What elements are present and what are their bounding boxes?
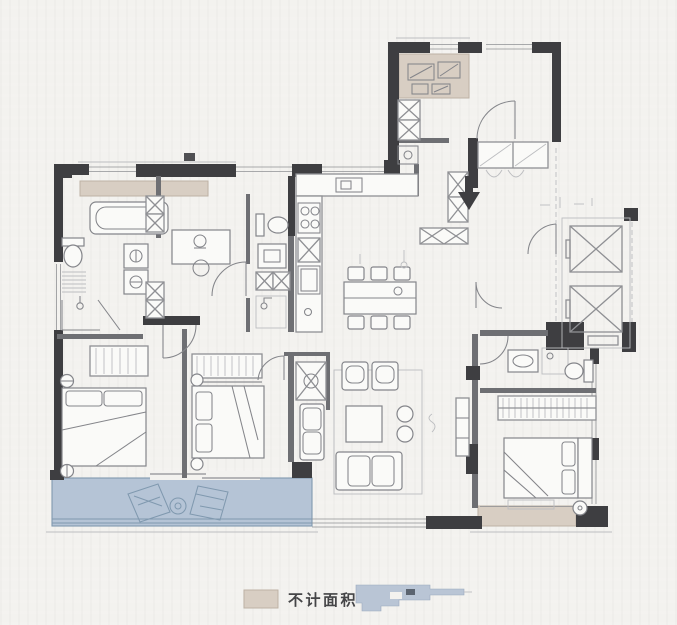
chaise	[300, 404, 324, 460]
shower	[62, 296, 120, 330]
vanity-sinks	[124, 244, 148, 294]
bedroom-3	[498, 396, 596, 515]
tv-bench	[456, 398, 469, 456]
shower	[542, 348, 568, 374]
ac-closet	[296, 362, 326, 400]
legend-keyplan	[356, 585, 472, 611]
door-arc	[480, 336, 508, 364]
counter-north	[296, 174, 418, 196]
balcony-sliding-door	[150, 471, 260, 480]
pouf	[397, 426, 413, 442]
bedside-lamp	[191, 374, 203, 386]
utility-shaft	[398, 100, 420, 164]
study-room	[146, 196, 246, 318]
elevator-shaft-2	[570, 286, 622, 332]
toilet	[565, 360, 593, 382]
shower	[256, 296, 286, 328]
door-arc	[163, 325, 196, 358]
pouf	[397, 406, 413, 422]
counter-west	[296, 196, 322, 332]
sofa	[336, 452, 402, 490]
legend: 不计面积	[244, 585, 472, 611]
mid-bath-door-arc	[212, 262, 246, 296]
sketch-marks	[540, 197, 592, 208]
duct-shafts	[420, 172, 468, 244]
bed	[504, 438, 592, 498]
dresser	[90, 346, 148, 376]
bed	[62, 388, 146, 466]
bedroom-1	[61, 325, 197, 478]
entry-door-arc	[477, 101, 515, 139]
toilet-tank	[256, 214, 264, 236]
vanity	[258, 244, 286, 268]
bathroom-middle	[256, 214, 290, 328]
bed	[192, 386, 264, 458]
balcony	[46, 471, 318, 532]
wardrobe	[498, 396, 596, 420]
storage-shafts	[146, 196, 164, 318]
coffee-table	[346, 406, 382, 442]
floor-plan: 不计面积	[0, 0, 677, 625]
unit-door-arc	[528, 224, 556, 254]
elevator-shaft-1	[570, 226, 622, 272]
toilet-bowl	[268, 217, 288, 233]
louver-vent	[62, 272, 86, 292]
bedside-lamp	[573, 501, 587, 515]
legend-label: 不计面积	[288, 591, 358, 609]
bay-window-strip	[80, 181, 208, 196]
desk	[172, 230, 230, 276]
dining-area	[344, 250, 416, 329]
living-door-arc	[476, 282, 502, 308]
toilet	[62, 238, 84, 267]
entry-closet	[478, 142, 548, 177]
bedside-lamp	[191, 458, 203, 470]
bedroom-2	[191, 354, 284, 470]
legend-beige-swatch	[244, 590, 278, 608]
living-room	[296, 362, 469, 494]
floorplan-canvas: 不计面积	[0, 0, 677, 625]
